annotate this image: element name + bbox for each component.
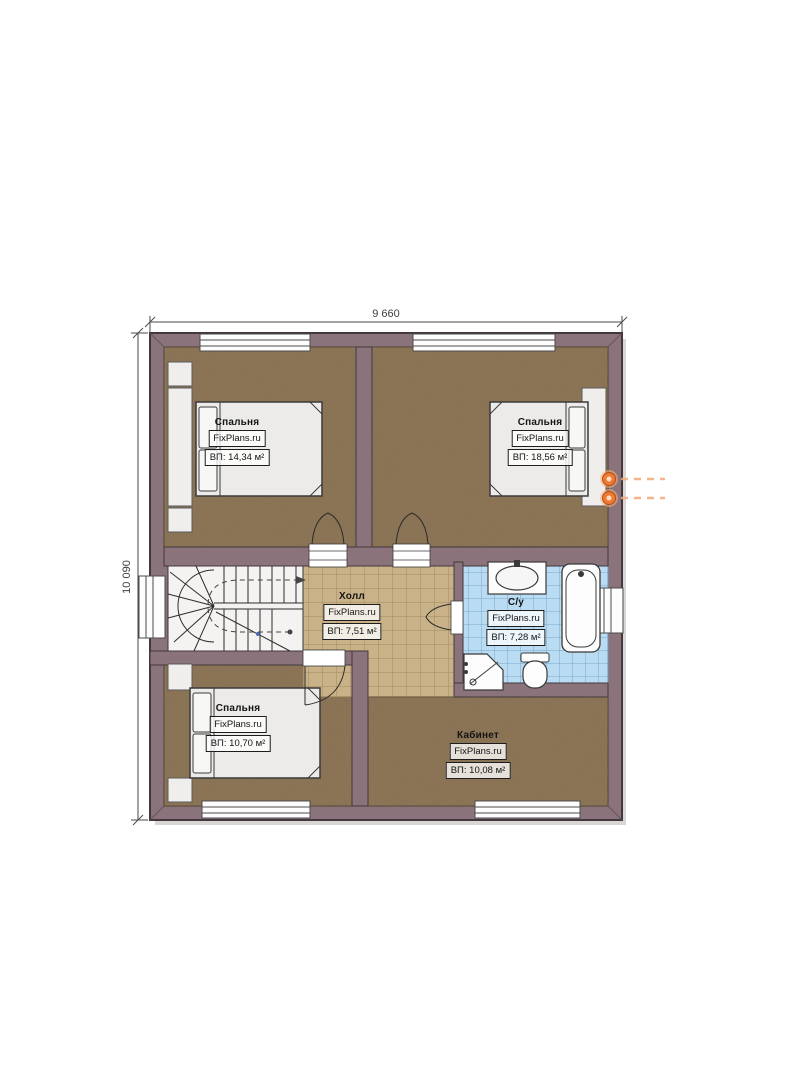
nightstand-bottom-left-upper xyxy=(168,664,192,690)
room-area-label: ВП: 7,28 м² xyxy=(486,629,545,646)
window-top-right xyxy=(413,334,555,351)
watermark-label: FixPlans.ru xyxy=(449,743,507,760)
room-name-label: Кабинет xyxy=(457,730,499,741)
toilet xyxy=(521,653,549,688)
nightstand-top-left-lower xyxy=(168,508,192,532)
room-area-label: ВП: 7,51 м² xyxy=(322,623,381,640)
bathtub-faucet xyxy=(578,571,584,577)
floor-plan-canvas: 9 660 10 090 Спальня FixPlans.ru ВП: 14,… xyxy=(0,0,792,1080)
room-name-label: Холл xyxy=(339,591,365,602)
bathtub xyxy=(562,564,600,652)
watermark-label: FixPlans.ru xyxy=(209,716,267,733)
wall-lamp-lower xyxy=(600,489,665,507)
window-right-bathroom xyxy=(597,588,623,633)
sink-faucet xyxy=(514,560,520,567)
nightstand-top-left-upper xyxy=(168,362,192,386)
room-area-label: ВП: 18,56 м² xyxy=(508,449,573,466)
window-top-left xyxy=(200,334,310,351)
room-name-label: Спальня xyxy=(216,703,261,714)
room-area-label: ВП: 10,70 м² xyxy=(206,735,271,752)
stairs-marker-dot xyxy=(256,632,260,636)
room-name-label: С/у xyxy=(508,597,524,608)
nightstand-bottom-left-lower xyxy=(168,778,192,802)
room-name-label: Спальня xyxy=(215,417,260,428)
watermark-label: FixPlans.ru xyxy=(487,610,545,627)
room-label-bedroom-bottom-left: Спальня FixPlans.ru ВП: 10,70 м² xyxy=(206,703,271,752)
sink xyxy=(488,560,546,594)
dimension-width-label: 9 660 xyxy=(372,308,400,320)
room-area-label: ВП: 10,08 м² xyxy=(446,762,511,779)
room-label-bedroom-top-right: Спальня FixPlans.ru ВП: 18,56 м² xyxy=(508,417,573,466)
window-bottom-right xyxy=(475,801,580,818)
watermark-label: FixPlans.ru xyxy=(511,430,569,447)
room-label-bathroom: С/у FixPlans.ru ВП: 7,28 м² xyxy=(486,597,545,646)
window-left-stairs xyxy=(139,576,165,638)
room-label-hall: Холл FixPlans.ru ВП: 7,51 м² xyxy=(322,591,381,640)
floor-plan-drawing xyxy=(0,0,792,1080)
wall-lamp-upper xyxy=(600,470,665,488)
room-name-label: Спальня xyxy=(518,417,563,428)
room-label-office: Кабинет FixPlans.ru ВП: 10,08 м² xyxy=(446,730,511,779)
dimension-height-label: 10 090 xyxy=(121,560,133,594)
window-bottom-left xyxy=(202,801,310,818)
radiator-niche-top-left xyxy=(168,388,192,506)
room-label-bedroom-top-left: Спальня FixPlans.ru ВП: 14,34 м² xyxy=(205,417,270,466)
room-area-label: ВП: 14,34 м² xyxy=(205,449,270,466)
watermark-label: FixPlans.ru xyxy=(323,604,381,621)
watermark-label: FixPlans.ru xyxy=(208,430,266,447)
